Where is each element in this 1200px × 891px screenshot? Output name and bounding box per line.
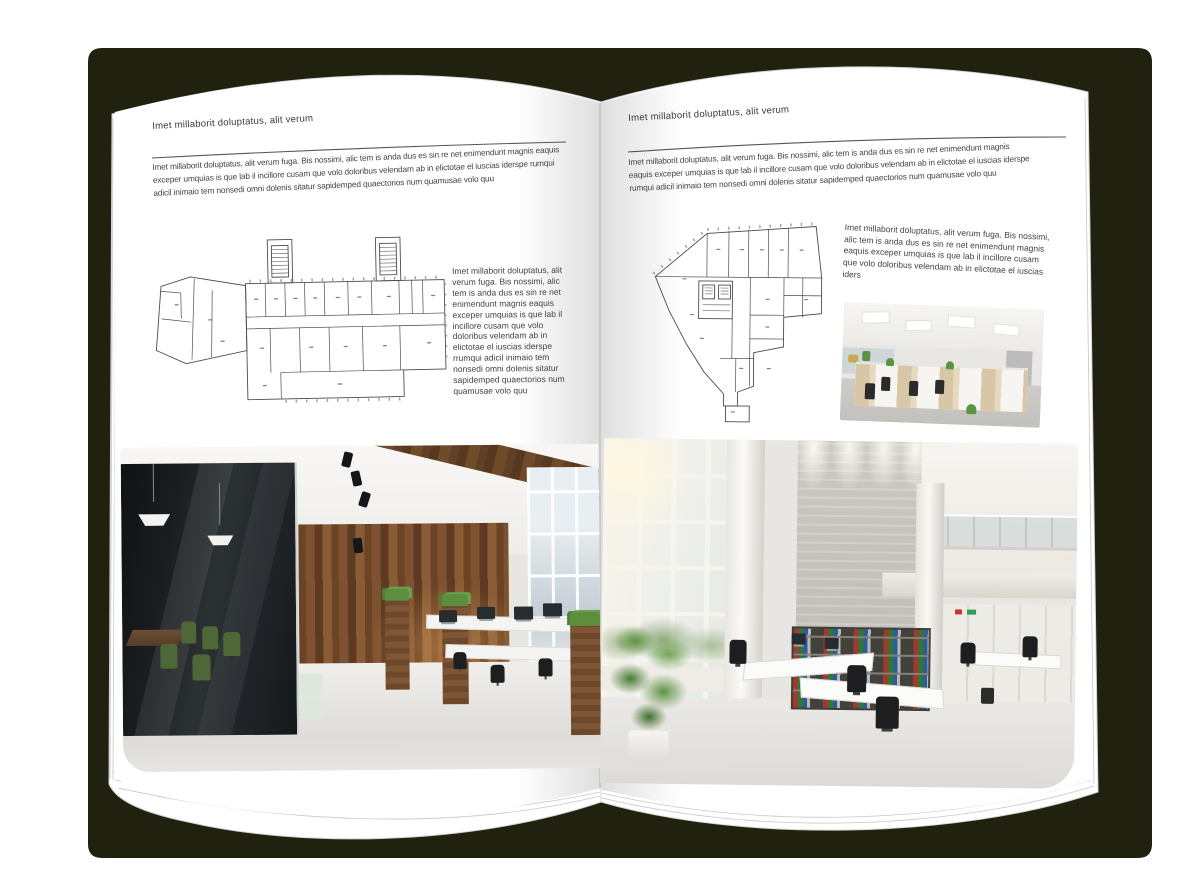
right-page-header: Imet millaborit doluptatus, alit verum bbox=[628, 95, 958, 124]
planter-grass bbox=[385, 588, 409, 600]
planter-grass bbox=[442, 594, 468, 606]
green-chair bbox=[161, 643, 178, 668]
south-stub bbox=[725, 406, 749, 422]
office-chair bbox=[539, 658, 553, 676]
plant bbox=[862, 351, 870, 361]
track-spotlight bbox=[353, 538, 364, 554]
office-chair bbox=[491, 665, 505, 683]
safety-sign-icon bbox=[955, 610, 962, 615]
plant-pot bbox=[629, 731, 669, 763]
pendant-lamp bbox=[138, 500, 170, 526]
floor-plant bbox=[966, 404, 976, 414]
photo-atrium-office bbox=[600, 438, 1078, 789]
office-chair bbox=[881, 377, 891, 391]
office-chair bbox=[454, 652, 467, 669]
exit-sign-icon bbox=[967, 610, 976, 615]
monitor bbox=[514, 606, 533, 619]
office-chair bbox=[935, 380, 945, 394]
green-chair bbox=[181, 621, 196, 643]
right-floor-plan bbox=[640, 219, 840, 427]
left-page-header: Imet millaborit doluptatus, alit verum bbox=[152, 105, 482, 132]
wood-planter bbox=[570, 625, 601, 735]
office-chair bbox=[961, 643, 976, 664]
wood-planter bbox=[385, 598, 410, 690]
lamp-cord bbox=[153, 464, 154, 502]
monitor bbox=[791, 634, 805, 645]
planter-grass bbox=[570, 612, 600, 626]
glass-meeting-room bbox=[121, 463, 300, 737]
light-panel bbox=[862, 311, 890, 323]
green-chair bbox=[192, 654, 210, 680]
light-panel bbox=[905, 320, 931, 331]
green-chair bbox=[202, 627, 218, 650]
left-floor-plan bbox=[150, 226, 449, 420]
green-chair bbox=[223, 632, 240, 656]
monitor bbox=[477, 607, 495, 619]
monitor bbox=[824, 637, 838, 648]
office-chair bbox=[848, 665, 867, 692]
concrete-feature-wall bbox=[796, 440, 926, 635]
mezzanine-underside bbox=[882, 573, 1077, 600]
left-page-side-text: Imet millaborit doluptatus, alit verum f… bbox=[452, 265, 567, 397]
office-chair bbox=[909, 380, 919, 395]
office-chair bbox=[865, 383, 876, 399]
photo-loft-office bbox=[121, 444, 602, 772]
main-block-outline bbox=[246, 280, 447, 400]
building-outline bbox=[654, 225, 822, 407]
west-wing-outline bbox=[155, 276, 247, 364]
office-chair bbox=[729, 640, 746, 664]
desk-plant bbox=[886, 358, 894, 366]
waste-bin bbox=[981, 688, 994, 704]
monitor bbox=[543, 603, 562, 616]
open-brochure-mockup: Imet millaborit doluptatus, alit verum I… bbox=[0, 0, 1200, 891]
desk-plant bbox=[946, 362, 954, 370]
office-chair bbox=[876, 697, 899, 729]
light-panel bbox=[947, 315, 976, 329]
monitor bbox=[439, 610, 457, 622]
potted-plant bbox=[605, 609, 703, 736]
photo-cubicle-office bbox=[840, 302, 1044, 428]
right-page-side-text: Imet millaborit doluptatus, alit verum f… bbox=[842, 222, 1051, 291]
stair-core bbox=[699, 281, 733, 319]
office-chair bbox=[1023, 636, 1038, 657]
light-panel bbox=[993, 323, 1020, 336]
